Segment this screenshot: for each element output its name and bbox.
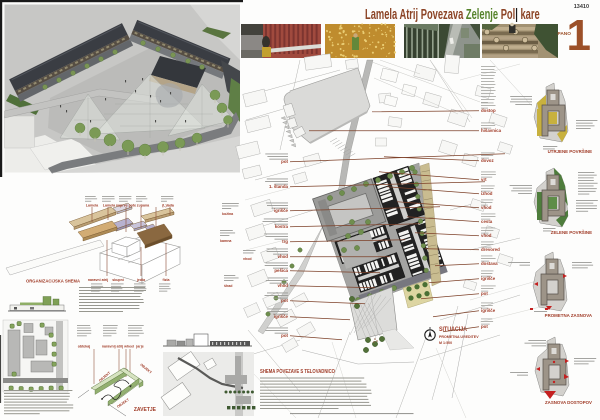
svg-text:pot: pot — [281, 159, 288, 164]
svg-text:vhod: vhod — [243, 257, 252, 261]
svg-text:vhod: vhod — [278, 254, 289, 259]
svg-text:kožina: kožina — [222, 212, 234, 216]
svg-text:naravni atrij: naravni atrij — [88, 278, 108, 282]
svg-text:igrišče: igrišče — [274, 314, 289, 319]
svg-text:jarje: jarje — [135, 345, 143, 349]
svg-text:dovoz: dovoz — [481, 158, 494, 163]
svg-text:ORGANIZACIJSKA SHEMA: ORGANIZACIJSKA SHEMA — [26, 279, 80, 285]
svg-text:Lamela: Lamela — [86, 204, 99, 208]
svg-text:ZAVETJE: ZAVETJE — [134, 407, 157, 413]
svg-text:igrišče: igrišče — [274, 208, 289, 213]
svg-text:13410: 13410 — [574, 4, 589, 10]
svg-text:vhod: vhod — [481, 233, 492, 238]
svg-text:SHEMA POVEZAVE S TELOVADNICO: SHEMA POVEZAVE S TELOVADNICO — [260, 369, 335, 375]
svg-text:jedla: jedla — [136, 278, 146, 282]
svg-text:Lamela Atrij Povezava Zelenje: Lamela Atrij Povezava Zelenje Pol| kare — [365, 6, 540, 23]
svg-text:kostra: kostra — [275, 224, 289, 229]
svg-text:Lamela: Lamela — [103, 204, 116, 208]
svg-text:dostava: dostava — [481, 261, 498, 266]
svg-text:ZASNOVA DOSTOPOV: ZASNOVA DOSTOPOV — [545, 400, 592, 405]
svg-text:cesta: cesta — [481, 219, 493, 224]
svg-text:pešica: pešica — [274, 268, 288, 273]
svg-text:vhod: vhod — [278, 283, 289, 288]
svg-text:pot: pot — [281, 298, 288, 303]
svg-text:trg: trg — [282, 239, 288, 244]
svg-text:skupni: skupni — [112, 278, 124, 282]
svg-text:zupana: zupana — [137, 204, 150, 208]
svg-text:izhod: izhod — [481, 191, 493, 196]
svg-text:M 1:500: M 1:500 — [439, 341, 452, 345]
svg-text:naprve pote: naprve pote — [116, 204, 136, 208]
svg-text:PROMETNA ZASNOVA: PROMETNA ZASNOVA — [545, 313, 593, 318]
svg-text:fizla: fizla — [163, 278, 171, 282]
svg-text:naravnij atrij wheel: naravnij atrij wheel — [102, 345, 134, 349]
svg-text:UTRJENE POVRŠINE: UTRJENE POVRŠINE — [548, 149, 592, 154]
svg-text:kamna: kamna — [220, 239, 232, 243]
svg-text:(L)lada: (L)lada — [162, 204, 175, 208]
svg-text:pot: pot — [481, 324, 488, 329]
svg-text:ZELENE POVRŠINE: ZELENE POVRŠINE — [551, 230, 592, 235]
svg-text:1: 1 — [567, 11, 591, 60]
svg-text:dostop: dostop — [481, 108, 496, 113]
svg-text:igrišče: igrišče — [481, 276, 496, 281]
svg-text:obtekaj: obtekaj — [78, 345, 91, 349]
svg-text:drevored: drevored — [481, 247, 500, 252]
svg-text:vhod: vhod — [481, 205, 492, 210]
svg-text:1. štanda: 1. štanda — [269, 184, 289, 189]
svg-text:PROMETNA UREDITEV: PROMETNA UREDITEV — [439, 335, 479, 339]
svg-text:pot: pot — [481, 291, 488, 296]
svg-text:šhad: šhad — [224, 284, 232, 288]
svg-text:hišavnica: hišavnica — [481, 128, 502, 133]
svg-text:pot: pot — [281, 333, 288, 338]
svg-text:vrt: vrt — [481, 177, 487, 182]
svg-text:igrišče: igrišče — [481, 308, 496, 313]
